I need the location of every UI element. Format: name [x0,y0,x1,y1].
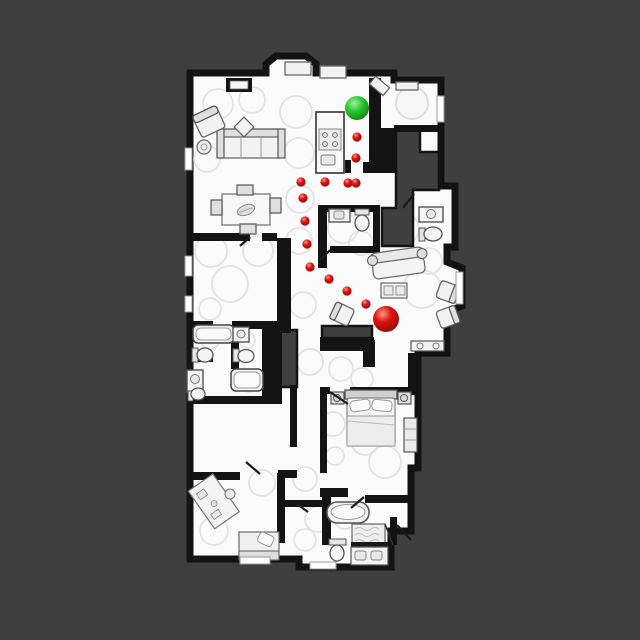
bed [345,390,397,446]
vanity-center [233,327,249,342]
window-bench [396,82,418,90]
media-console [411,341,444,351]
floor-plan-map [0,0,640,640]
toilet-northwest [192,348,213,362]
dresser [404,418,417,452]
toilet-center [233,349,254,363]
entry-console [285,62,311,75]
waypoint-dot [351,178,360,187]
powder-vanity [329,209,350,222]
dining-table [222,194,270,225]
desk-chair [225,489,235,499]
nightstand-right [398,392,411,404]
master-bathtub [327,502,369,523]
bathroom-toilet [419,227,442,241]
bathroom-vanity [419,207,443,222]
scene-stage [0,0,640,640]
waypoint-dot [296,177,305,186]
waypoint-dot [352,132,361,141]
bathtub-center [231,369,263,391]
daybed [239,531,279,560]
waypoint-dot [305,262,314,271]
waypoint-dot [300,216,309,225]
hall-console [320,66,346,78]
waypoint-dot [302,239,311,248]
waypoint-dot [324,274,333,283]
waypoint-dot [342,286,351,295]
bathtub-northwest [193,325,234,343]
waypoint-dot [343,178,352,187]
kitchen-counter [316,112,344,173]
waypoint-dot [361,299,370,308]
tray-table [381,283,407,298]
waypoint-dot [298,193,307,202]
sofa [217,129,285,158]
waypoint-dot [351,153,360,162]
round-rug [396,87,428,119]
powder-toilet [355,209,369,231]
waypoint-dot [320,177,329,186]
side-table [197,140,211,154]
fireplace [226,78,252,92]
goal-marker [345,96,369,120]
agent-marker [373,306,399,332]
double-vanity [351,542,388,565]
